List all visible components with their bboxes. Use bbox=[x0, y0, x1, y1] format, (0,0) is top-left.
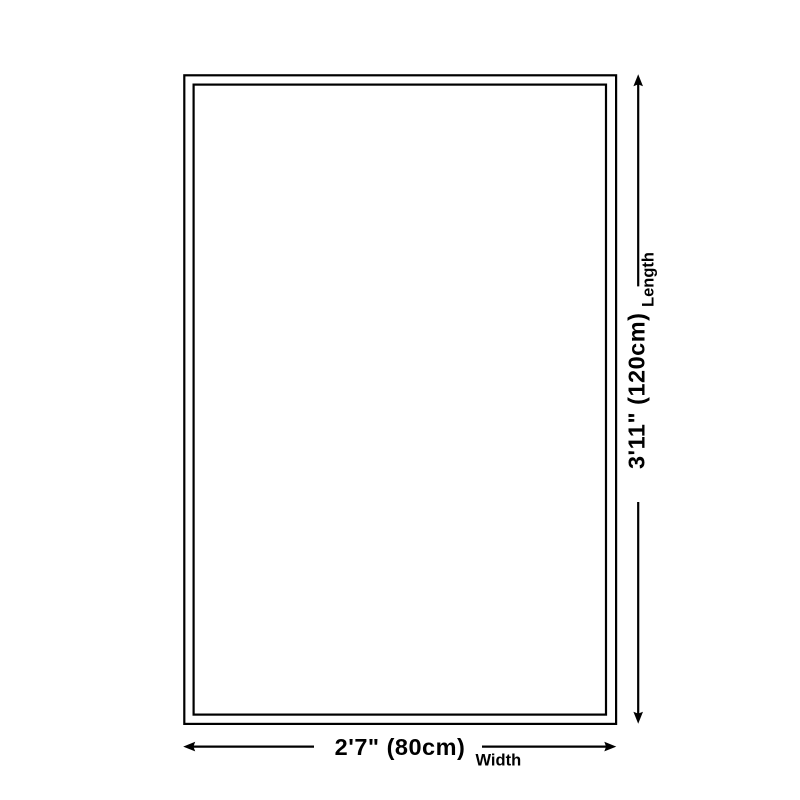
svg-text:Width: Width bbox=[476, 751, 522, 769]
svg-text:2'7" (80cm): 2'7" (80cm) bbox=[335, 734, 466, 760]
svg-text:Length: Length bbox=[639, 252, 657, 307]
svg-text:3'11" (120cm): 3'11" (120cm) bbox=[624, 313, 650, 470]
